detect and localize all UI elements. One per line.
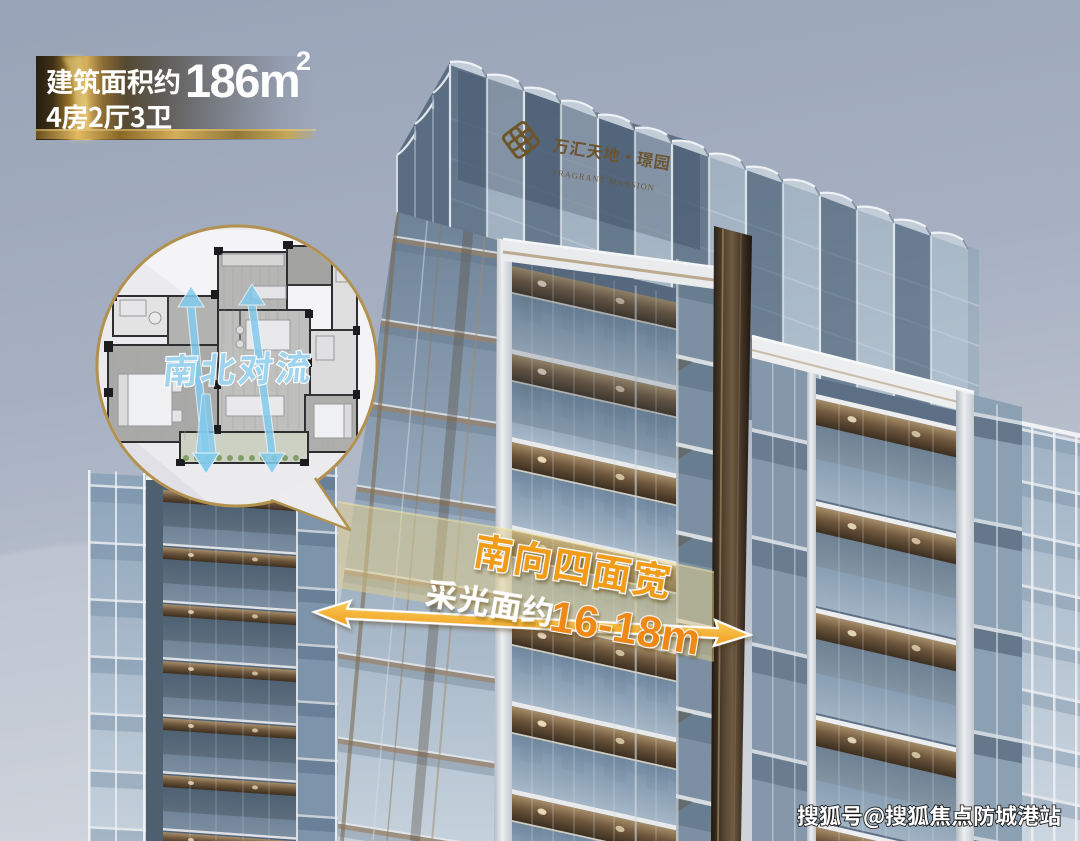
- svg-text:2: 2: [296, 46, 311, 76]
- svg-text:186m: 186m: [185, 54, 299, 107]
